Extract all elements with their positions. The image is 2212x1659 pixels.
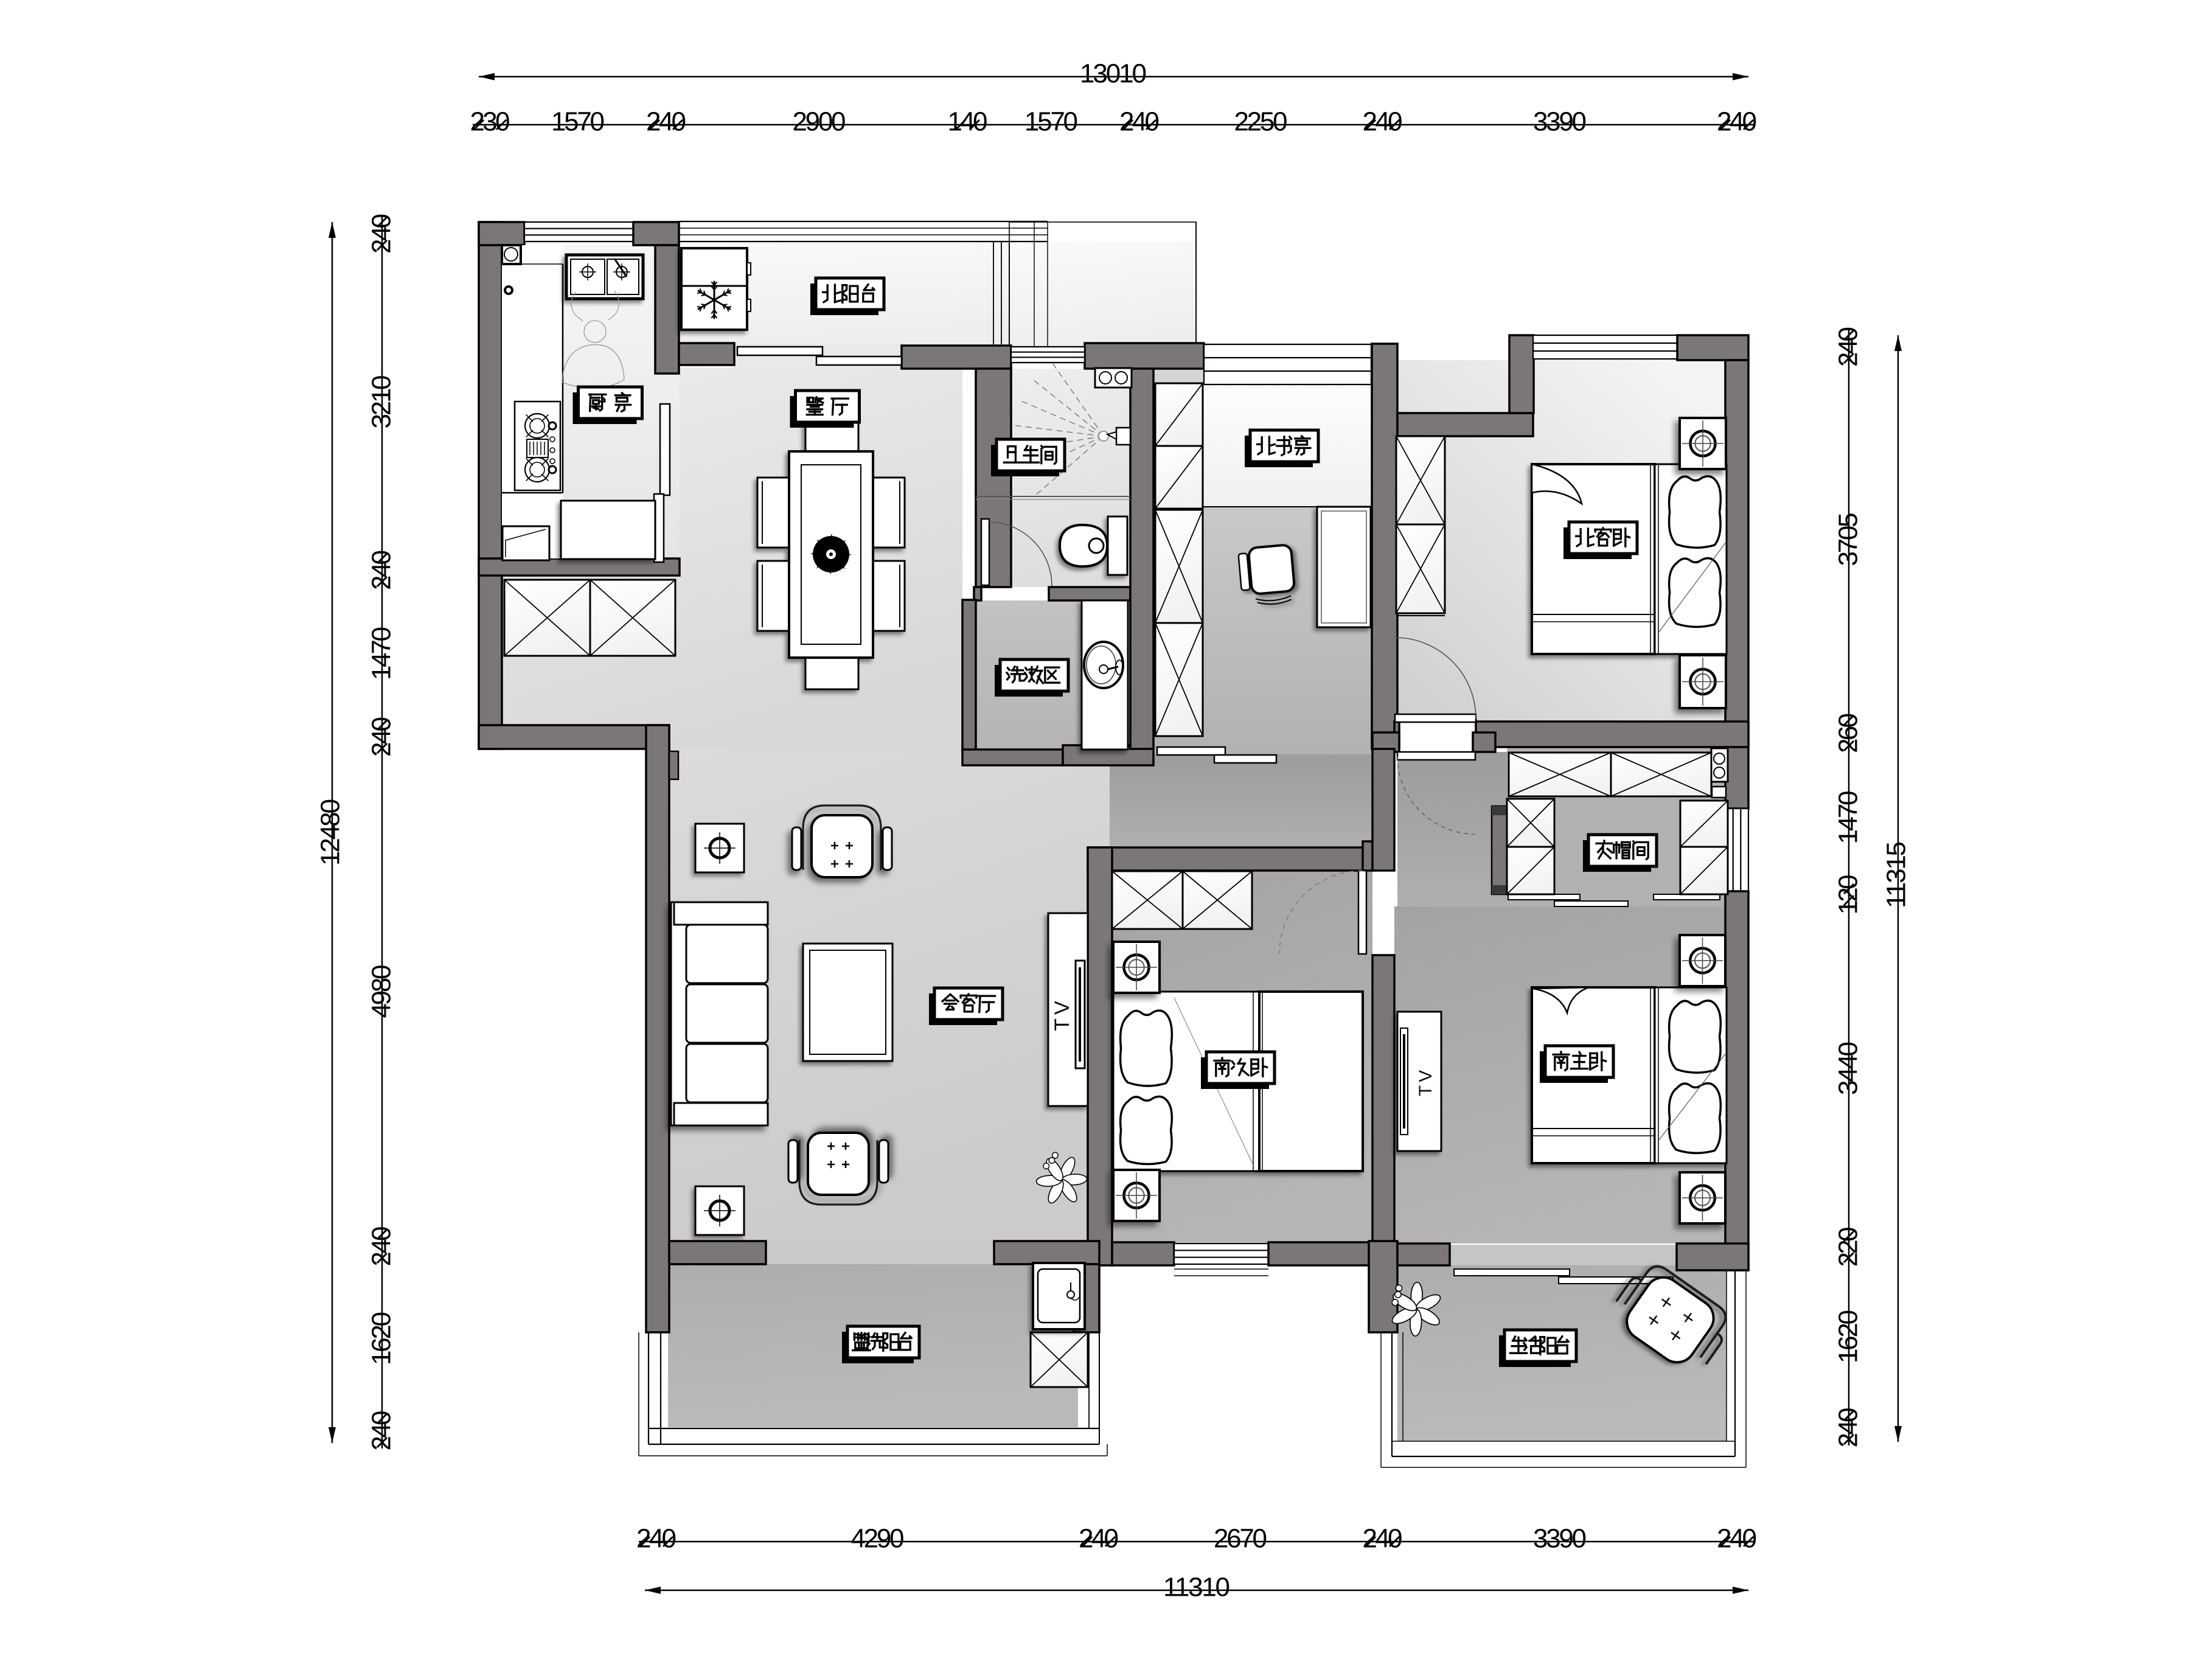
svg-text:2900: 2900	[793, 107, 846, 137]
svg-text:3210: 3210	[367, 375, 397, 429]
svg-text:1570: 1570	[1024, 107, 1078, 137]
svg-text:240: 240	[636, 1524, 676, 1554]
svg-text:220: 220	[1834, 1227, 1863, 1267]
svg-text:TV: TV	[1416, 1067, 1436, 1096]
svg-text:4980: 4980	[367, 965, 397, 1018]
svg-text:240: 240	[1363, 1524, 1403, 1554]
svg-text:1570: 1570	[551, 107, 605, 137]
svg-text:1470: 1470	[367, 627, 397, 680]
svg-text:240: 240	[367, 550, 397, 590]
svg-text:2670: 2670	[1214, 1524, 1267, 1554]
svg-text:13010: 13010	[1080, 59, 1147, 89]
svg-text:11310: 11310	[1163, 1573, 1230, 1602]
svg-text:3440: 3440	[1834, 1042, 1863, 1095]
svg-text:240: 240	[1119, 107, 1160, 137]
svg-text:240: 240	[1363, 107, 1403, 137]
svg-text:240: 240	[1079, 1524, 1119, 1554]
svg-text:4290: 4290	[851, 1524, 905, 1554]
svg-text:1620: 1620	[367, 1312, 397, 1365]
svg-text:1470: 1470	[1834, 791, 1863, 844]
svg-text:12480: 12480	[316, 799, 346, 866]
svg-text:240: 240	[367, 1411, 397, 1451]
svg-text:240: 240	[1834, 1408, 1863, 1448]
svg-text:3390: 3390	[1533, 1524, 1587, 1554]
svg-text:140: 140	[948, 107, 988, 137]
svg-text:240: 240	[1834, 327, 1863, 367]
svg-text:240: 240	[1717, 107, 1757, 137]
svg-text:240: 240	[1717, 1524, 1757, 1554]
svg-text:240: 240	[367, 214, 397, 254]
svg-text:260: 260	[1834, 713, 1863, 753]
svg-text:240: 240	[646, 107, 686, 137]
svg-text:230: 230	[470, 107, 510, 137]
svg-text:3390: 3390	[1533, 107, 1587, 137]
svg-text:3705: 3705	[1834, 513, 1863, 566]
svg-text:240: 240	[367, 1226, 397, 1267]
svg-text:1620: 1620	[1834, 1310, 1863, 1363]
svg-text:240: 240	[367, 717, 397, 757]
svg-text:120: 120	[1834, 875, 1863, 915]
svg-text:TV: TV	[1051, 997, 1074, 1031]
svg-text:2250: 2250	[1234, 107, 1288, 137]
svg-text:11315: 11315	[1882, 841, 1911, 908]
